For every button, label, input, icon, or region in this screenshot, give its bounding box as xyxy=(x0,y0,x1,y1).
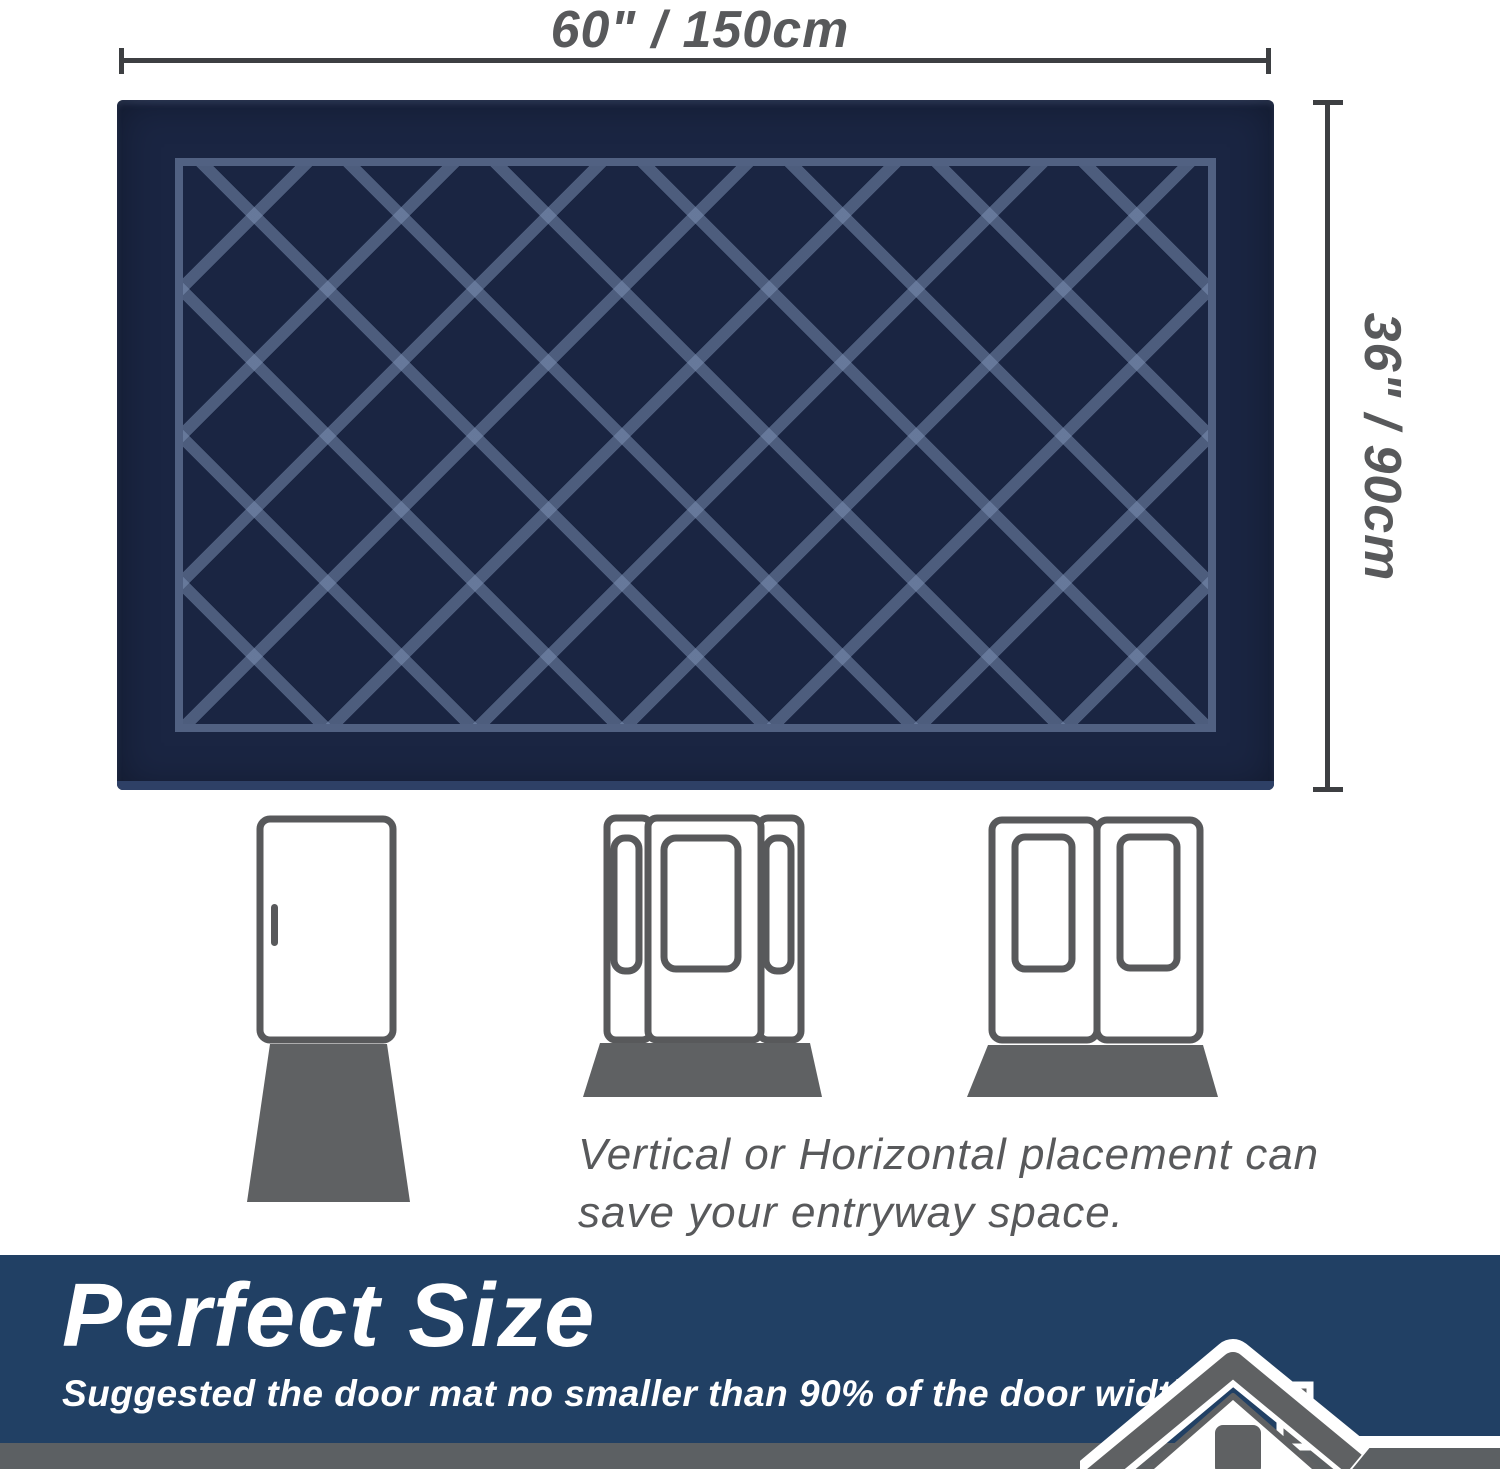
horizontal-mat-icon xyxy=(583,1043,822,1097)
horizontal-mat-icon xyxy=(967,1045,1218,1097)
placement-caption-line1: Vertical or Horizontal placement can xyxy=(578,1126,1319,1184)
product-infographic: 60" / 150cm 36" / 90cm xyxy=(0,0,1500,1469)
mat-fabric-edge xyxy=(117,781,1274,790)
height-dimension-tick-bottom xyxy=(1313,787,1343,792)
width-dimension-tick-left xyxy=(119,48,124,74)
placement-caption-line2: save your entryway space. xyxy=(578,1184,1319,1242)
height-dimension-label: 36" / 90cm xyxy=(1352,232,1412,662)
double-door-icon xyxy=(967,820,1218,1097)
banner-title: Perfect Size xyxy=(62,1265,596,1368)
vertical-mat-icon xyxy=(247,1044,410,1202)
width-dimension-tick-right xyxy=(1266,48,1271,74)
single-door-icon xyxy=(247,819,410,1202)
house-roof-icon xyxy=(1080,1330,1500,1469)
door-with-sidelights-icon xyxy=(583,818,822,1097)
placement-caption: Vertical or Horizontal placement can sav… xyxy=(578,1126,1319,1242)
mat-diamond-pattern xyxy=(183,166,1208,724)
height-dimension-line xyxy=(1325,102,1330,790)
width-dimension-line xyxy=(119,58,1271,63)
height-dimension-tick-top xyxy=(1313,100,1343,105)
width-dimension-label: 60" / 150cm xyxy=(350,0,1050,60)
door-mat-image xyxy=(117,100,1274,790)
banner-subtitle: Suggested the door mat no smaller than 9… xyxy=(62,1373,1205,1415)
